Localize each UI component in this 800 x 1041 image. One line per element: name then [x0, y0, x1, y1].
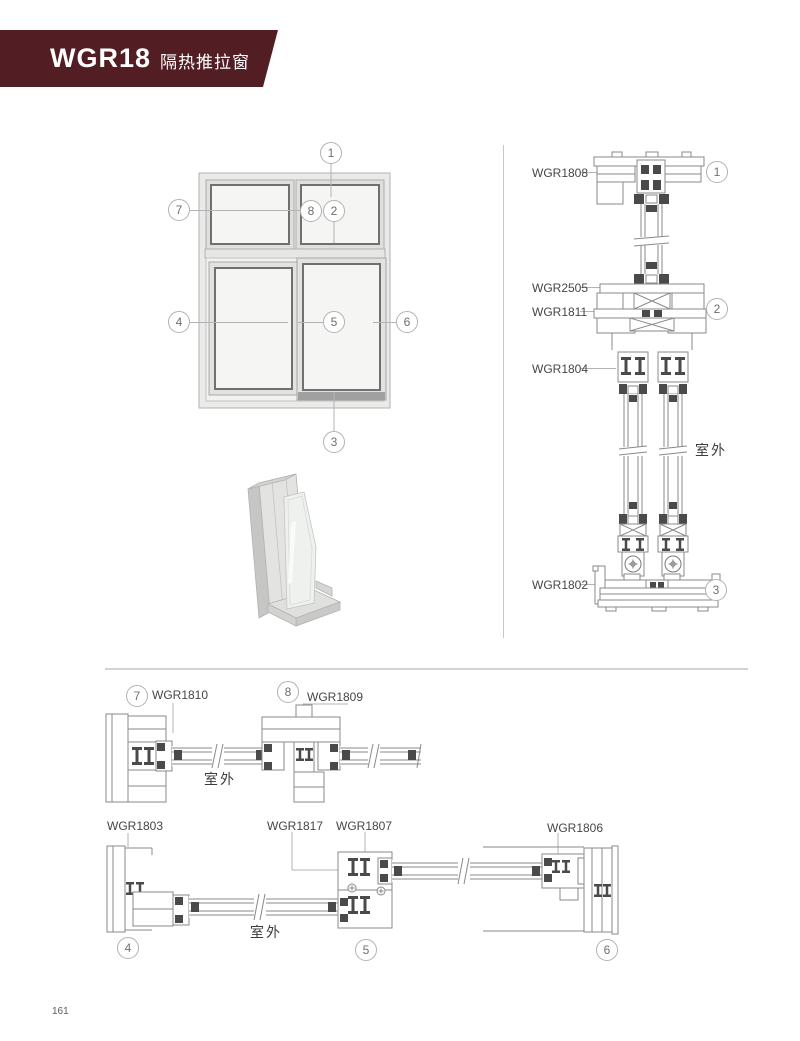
callout-6-horizontal-bottom: 6	[596, 939, 618, 961]
technical-drawings	[0, 0, 800, 1041]
part-label-wgr1804: WGR1804	[532, 362, 588, 376]
part-label-wgr1809: WGR1809	[307, 690, 363, 704]
horizontal-section-top	[106, 705, 422, 802]
part-label-wgr2505: WGR2505	[532, 281, 588, 295]
part-label-wgr1817: WGR1817	[267, 819, 323, 833]
callout-7-horizontal-top: 7	[126, 685, 148, 707]
callout-3-elevation: 3	[323, 431, 345, 453]
outside-label-vertical-section: 室外	[695, 440, 727, 460]
part-label-wgr1810: WGR1810	[152, 688, 208, 702]
callout-8-elevation: 8	[300, 200, 322, 222]
callout-7-elevation: 7	[168, 199, 190, 221]
callout-1-elevation: 1	[320, 142, 342, 164]
profile-3d-detail	[248, 474, 340, 626]
part-label-wgr1807: WGR1807	[336, 819, 392, 833]
vertical-section	[593, 152, 720, 611]
outside-label-horizontal-top: 室外	[204, 769, 236, 789]
callout-1-vertical-section: 1	[706, 161, 728, 183]
horizontal-section-bottom	[107, 846, 618, 934]
part-label-wgr1811: WGR1811	[532, 305, 587, 319]
callout-2-elevation: 2	[323, 200, 345, 222]
part-label-wgr1802: WGR1802	[532, 578, 588, 592]
catalog-page: WGR18 隔热推拉窗	[0, 0, 800, 1041]
callout-5-elevation: 5	[323, 311, 345, 333]
window-elevation	[199, 173, 390, 408]
part-label-wgr1806: WGR1806	[547, 821, 603, 835]
callout-6-elevation: 6	[396, 311, 418, 333]
callout-4-elevation: 4	[168, 311, 190, 333]
callout-5-horizontal-bottom: 5	[355, 939, 377, 961]
part-label-wgr1808: WGR1808	[532, 166, 588, 180]
callout-8-horizontal-top: 8	[277, 681, 299, 703]
callout-4-horizontal-bottom: 4	[117, 937, 139, 959]
callout-2-vertical-section: 2	[706, 298, 728, 320]
callout-3-vertical-section: 3	[705, 579, 727, 601]
outside-label-horizontal-bottom: 室外	[250, 922, 282, 942]
part-label-wgr1803: WGR1803	[107, 819, 163, 833]
